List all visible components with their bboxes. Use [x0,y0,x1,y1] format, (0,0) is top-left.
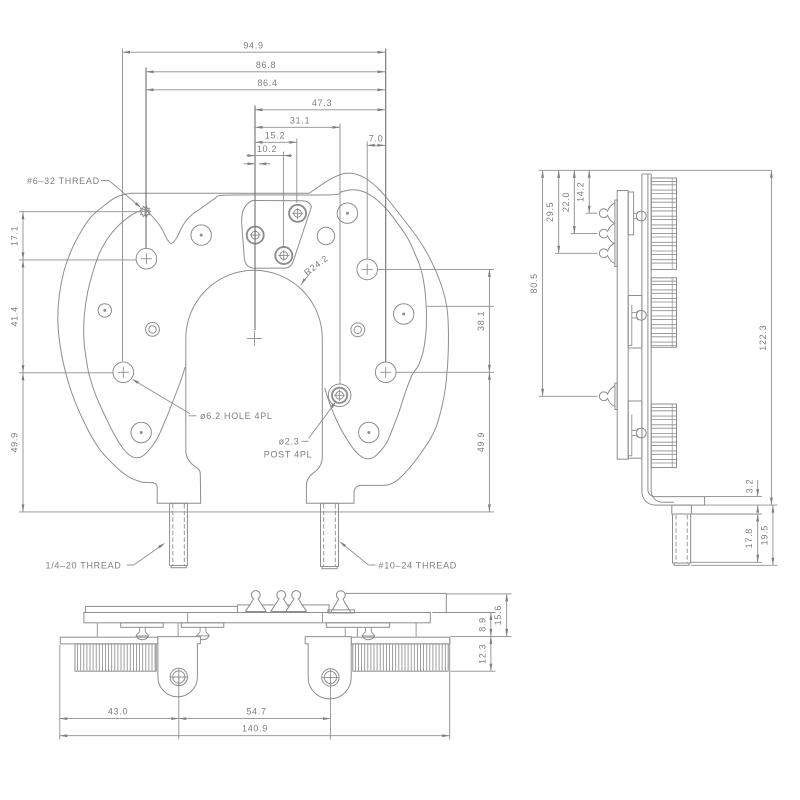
svg-text:7.0: 7.0 [369,134,384,144]
svg-text:47.3: 47.3 [312,98,332,108]
svg-text:POST 4PL: POST 4PL [264,450,312,460]
svg-text:80.5: 80.5 [529,273,539,293]
svg-text:22.0: 22.0 [561,192,571,212]
svg-text:8.9: 8.9 [477,617,487,632]
svg-text:#6–32 THREAD: #6–32 THREAD [27,176,100,186]
svg-text:86.8: 86.8 [256,60,276,70]
svg-text:140.9: 140.9 [242,724,268,734]
svg-text:86.4: 86.4 [257,78,277,88]
svg-text:38.1: 38.1 [476,311,486,331]
svg-text:10.2: 10.2 [257,144,277,154]
svg-text:#10–24 THREAD: #10–24 THREAD [379,561,457,571]
svg-text:3.2: 3.2 [745,479,755,494]
svg-text:49.9: 49.9 [10,432,20,452]
svg-text:15.6: 15.6 [493,605,503,625]
svg-text:122.3: 122.3 [758,325,768,351]
svg-text:31.1: 31.1 [290,116,310,126]
svg-text:29.5: 29.5 [545,202,555,222]
svg-text:17.1: 17.1 [10,226,20,246]
svg-text:ø2.3: ø2.3 [279,437,300,447]
svg-text:17.8: 17.8 [744,528,754,548]
svg-text:14.2: 14.2 [576,182,586,202]
svg-text:19.5: 19.5 [759,525,769,545]
svg-text:15.2: 15.2 [265,131,285,141]
svg-text:1/4–20 THREAD: 1/4–20 THREAD [46,561,122,571]
svg-text:49.9: 49.9 [476,432,486,452]
svg-text:ø6.2 HOLE 4PL: ø6.2 HOLE 4PL [200,411,273,421]
svg-text:94.9: 94.9 [243,41,263,51]
svg-text:12.3: 12.3 [477,644,487,664]
svg-text:41.4: 41.4 [10,306,20,326]
svg-text:43.0: 43.0 [108,707,128,717]
svg-text:54.7: 54.7 [246,707,266,717]
